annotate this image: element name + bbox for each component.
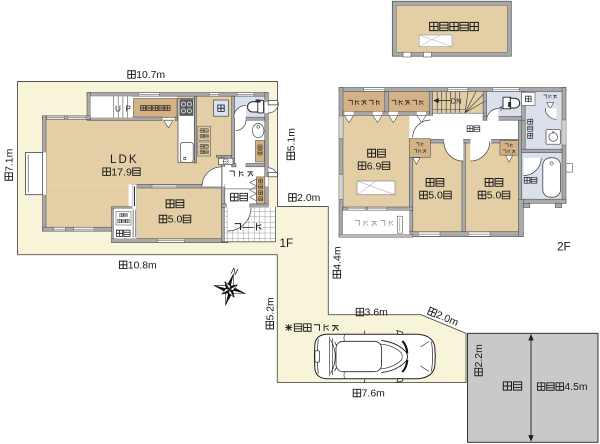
- svg-text:10.8m: 10.8m: [128, 260, 157, 271]
- svg-text:6.9: 6.9: [367, 160, 382, 172]
- svg-text:5.0: 5.0: [428, 190, 443, 202]
- svg-text:2.0m: 2.0m: [297, 193, 320, 204]
- svg-text:DN: DN: [451, 97, 462, 106]
- svg-text:5.0: 5.0: [487, 190, 502, 202]
- svg-text:3.6m: 3.6m: [365, 308, 388, 319]
- svg-text:7.6m: 7.6m: [362, 389, 385, 400]
- svg-text:2F: 2F: [557, 240, 571, 254]
- svg-text:17.9: 17.9: [111, 166, 132, 178]
- svg-text:—: —: [243, 221, 254, 233]
- svg-text:N: N: [230, 266, 239, 277]
- svg-text:4.4m: 4.4m: [332, 246, 343, 269]
- svg-text:5.2m: 5.2m: [265, 297, 276, 320]
- svg-text:1F: 1F: [280, 236, 294, 250]
- svg-text:5.0: 5.0: [168, 214, 183, 226]
- svg-text:4.5m: 4.5m: [564, 382, 587, 393]
- svg-text:E3: E3: [223, 159, 229, 165]
- svg-text:10.7m: 10.7m: [136, 70, 165, 81]
- svg-text:5.1m: 5.1m: [286, 128, 297, 151]
- svg-text:LDK: LDK: [110, 154, 137, 166]
- svg-text:7.1m: 7.1m: [4, 149, 15, 172]
- svg-text:2.2m: 2.2m: [474, 344, 485, 367]
